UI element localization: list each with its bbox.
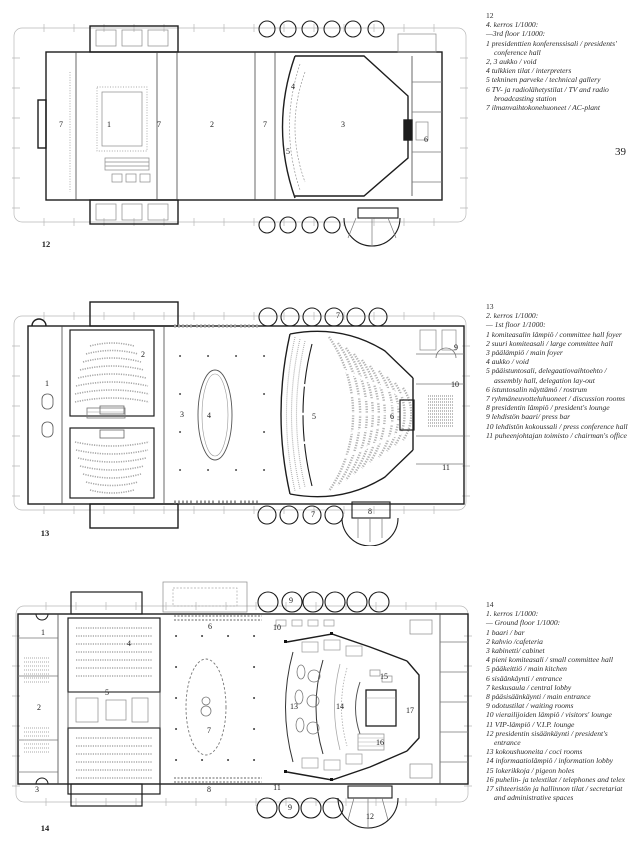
legend-item: 10 lehdistön kokoussali / press conferen…: [486, 422, 628, 431]
legend-item: 8 pääsisäänkäynti / main entrance: [486, 692, 628, 701]
legend-item: 3 päälämpiö / main foyer: [486, 348, 628, 357]
legend-item: 3 kabinetti/ cabinet: [486, 646, 628, 655]
room-number: 6: [424, 136, 428, 144]
legend-item: 5 pääistuntosali, delegaatiovaihtoehto /…: [486, 366, 628, 384]
room-number: 12: [366, 813, 374, 821]
plan-14-labels: 1234567891091112131415161714: [10, 580, 480, 862]
figure-ref: 14: [486, 600, 628, 609]
room-number: 1: [107, 121, 111, 129]
room-number: 4: [207, 412, 211, 420]
room-number: 7: [157, 121, 161, 129]
figure-ref: 13: [486, 302, 628, 311]
legend-item: 13 kokoushuoneita / coci rooms: [486, 747, 628, 756]
room-number: 6: [208, 623, 212, 631]
legend-item: 16 puhelin- ja telextilat / telephones a…: [486, 775, 628, 784]
room-number: 5: [286, 148, 290, 156]
room-number: 7: [311, 511, 315, 519]
legend-4th-floor: 12 4. kerros 1/1000: —3rd floor 1/1000: …: [486, 11, 628, 112]
room-number: 7: [336, 312, 340, 320]
legend-title-en: — 1st floor 1/1000:: [486, 320, 628, 329]
legend-item: 4 aukko / void: [486, 357, 628, 366]
room-number: 4: [127, 640, 131, 648]
figure-ref: 12: [486, 11, 628, 20]
legend-item: 7 ilmanvaihtokonehuoneet / AC-plant: [486, 103, 628, 112]
legend-2nd-floor: 13 2. kerros 1/1000: — 1st floor 1/1000:…: [486, 302, 628, 440]
room-number: 8: [207, 786, 211, 794]
room-number: 9: [288, 804, 292, 812]
legend-item: 6 istuntosalin näyttämö / rostrum: [486, 385, 628, 394]
legend-item: 1 presidenttien konferenssisali / presid…: [486, 39, 628, 57]
legend-item: 11 VIP-lämpiö / V.I.P. lounge: [486, 720, 628, 729]
page-number: 39: [615, 146, 626, 158]
legend-title-fi: 2. kerros 1/1000:: [486, 311, 628, 320]
legend-item: 2 suuri komiteasali / large committee ha…: [486, 339, 628, 348]
legend-item: 1 komiteasalin lämpiö / committee hall f…: [486, 330, 628, 339]
plan-12-labels: 71727453612: [12, 12, 478, 252]
room-number: 2: [141, 351, 145, 359]
room-number: 11: [442, 464, 450, 472]
legend-item: 15 lokerikkoja / pigeon holes: [486, 766, 628, 775]
legend-title-en: —3rd floor 1/1000:: [486, 29, 628, 38]
legend-title-en: — Ground floor 1/1000:: [486, 618, 628, 627]
room-number: 2: [210, 121, 214, 129]
room-number: 7: [59, 121, 63, 129]
legend-item: 10 vierailijoiden lämpiö / visitors' lou…: [486, 710, 628, 719]
room-number: 3: [180, 411, 184, 419]
figure-number: 14: [41, 824, 50, 832]
legend-item: 7 ryhmäneuvotteluhuoneet / discussion ro…: [486, 394, 628, 403]
legend-item: 9 lehdistön baari/ press bar: [486, 412, 628, 421]
legend-title-fi: 4. kerros 1/1000:: [486, 20, 628, 29]
room-number: 10: [273, 624, 281, 632]
room-number: 10: [451, 381, 459, 389]
room-number: 13: [290, 703, 298, 711]
legend-items: 1 presidenttien konferenssisali / presid…: [486, 39, 628, 113]
figure-number: 12: [42, 240, 51, 248]
floor-plan-ground-floor: 1234567891091112131415161714: [10, 580, 480, 862]
room-number: 3: [341, 121, 345, 129]
legend-title-fi: 1. kerros 1/1000:: [486, 609, 628, 618]
plan-13-labels: 1234567789101113: [12, 296, 478, 546]
room-number: 5: [312, 413, 316, 421]
legend-item: 7 keskusaula / central lobby: [486, 683, 628, 692]
room-number: 1: [45, 380, 49, 388]
room-number: 14: [336, 703, 344, 711]
room-number: 15: [380, 673, 388, 681]
floor-plan-2nd-floor: 1234567789101113: [12, 296, 478, 546]
room-number: 5: [105, 689, 109, 697]
legend-ground-floor: 14 1. kerros 1/1000: — Ground floor 1/10…: [486, 600, 628, 802]
legend-item: 4 pieni komiteasali / small committee ha…: [486, 655, 628, 664]
legend-item: 2, 3 aukko / void: [486, 57, 628, 66]
legend-item: 1 baari / bar: [486, 628, 628, 637]
legend-item: 8 presidentin lämpiö / president's loung…: [486, 403, 628, 412]
room-number: 3: [35, 786, 39, 794]
legend-item: 6 TV- ja radiolähetystilat / TV and radi…: [486, 85, 628, 103]
legend-items: 1 baari / bar2 kahvio /cafeteria3 kabine…: [486, 628, 628, 803]
room-number: 7: [263, 121, 267, 129]
legend-item: 5 tekninen parveke / technical gallery: [486, 75, 628, 84]
room-number: 16: [376, 739, 384, 747]
room-number: 8: [368, 508, 372, 516]
figure-number: 13: [41, 529, 50, 537]
room-number: 7: [207, 727, 211, 735]
floor-plan-4th-floor: 71727453612: [12, 12, 478, 252]
room-number: 1: [41, 629, 45, 637]
legend-item: 4 tulkkien tilat / interpreters: [486, 66, 628, 75]
room-number: 9: [289, 597, 293, 605]
legend-item: 14 informaatiolämpiö / information lobby: [486, 756, 628, 765]
room-number: 2: [37, 704, 41, 712]
legend-item: 17 sihteeristön ja hallinnon tilat / sec…: [486, 784, 628, 802]
legend-item: 6 sisäänkäynti / entrance: [486, 674, 628, 683]
legend-item: 2 kahvio /cafeteria: [486, 637, 628, 646]
room-number: 6: [390, 413, 394, 421]
legend-item: 5 pääkeittiö / main kitchen: [486, 664, 628, 673]
room-number: 4: [291, 83, 295, 91]
book-page: 71727453612: [0, 0, 640, 865]
room-number: 9: [454, 344, 458, 352]
legend-item: 11 puheenjohtajan toimisto / chairman's …: [486, 431, 628, 440]
legend-item: 9 odotustilat / waiting rooms: [486, 701, 628, 710]
room-number: 17: [406, 707, 414, 715]
legend-item: 12 presidentin sisäänkäynti / president'…: [486, 729, 628, 747]
room-number: 11: [273, 784, 281, 792]
legend-items: 1 komiteasalin lämpiö / committee hall f…: [486, 330, 628, 440]
